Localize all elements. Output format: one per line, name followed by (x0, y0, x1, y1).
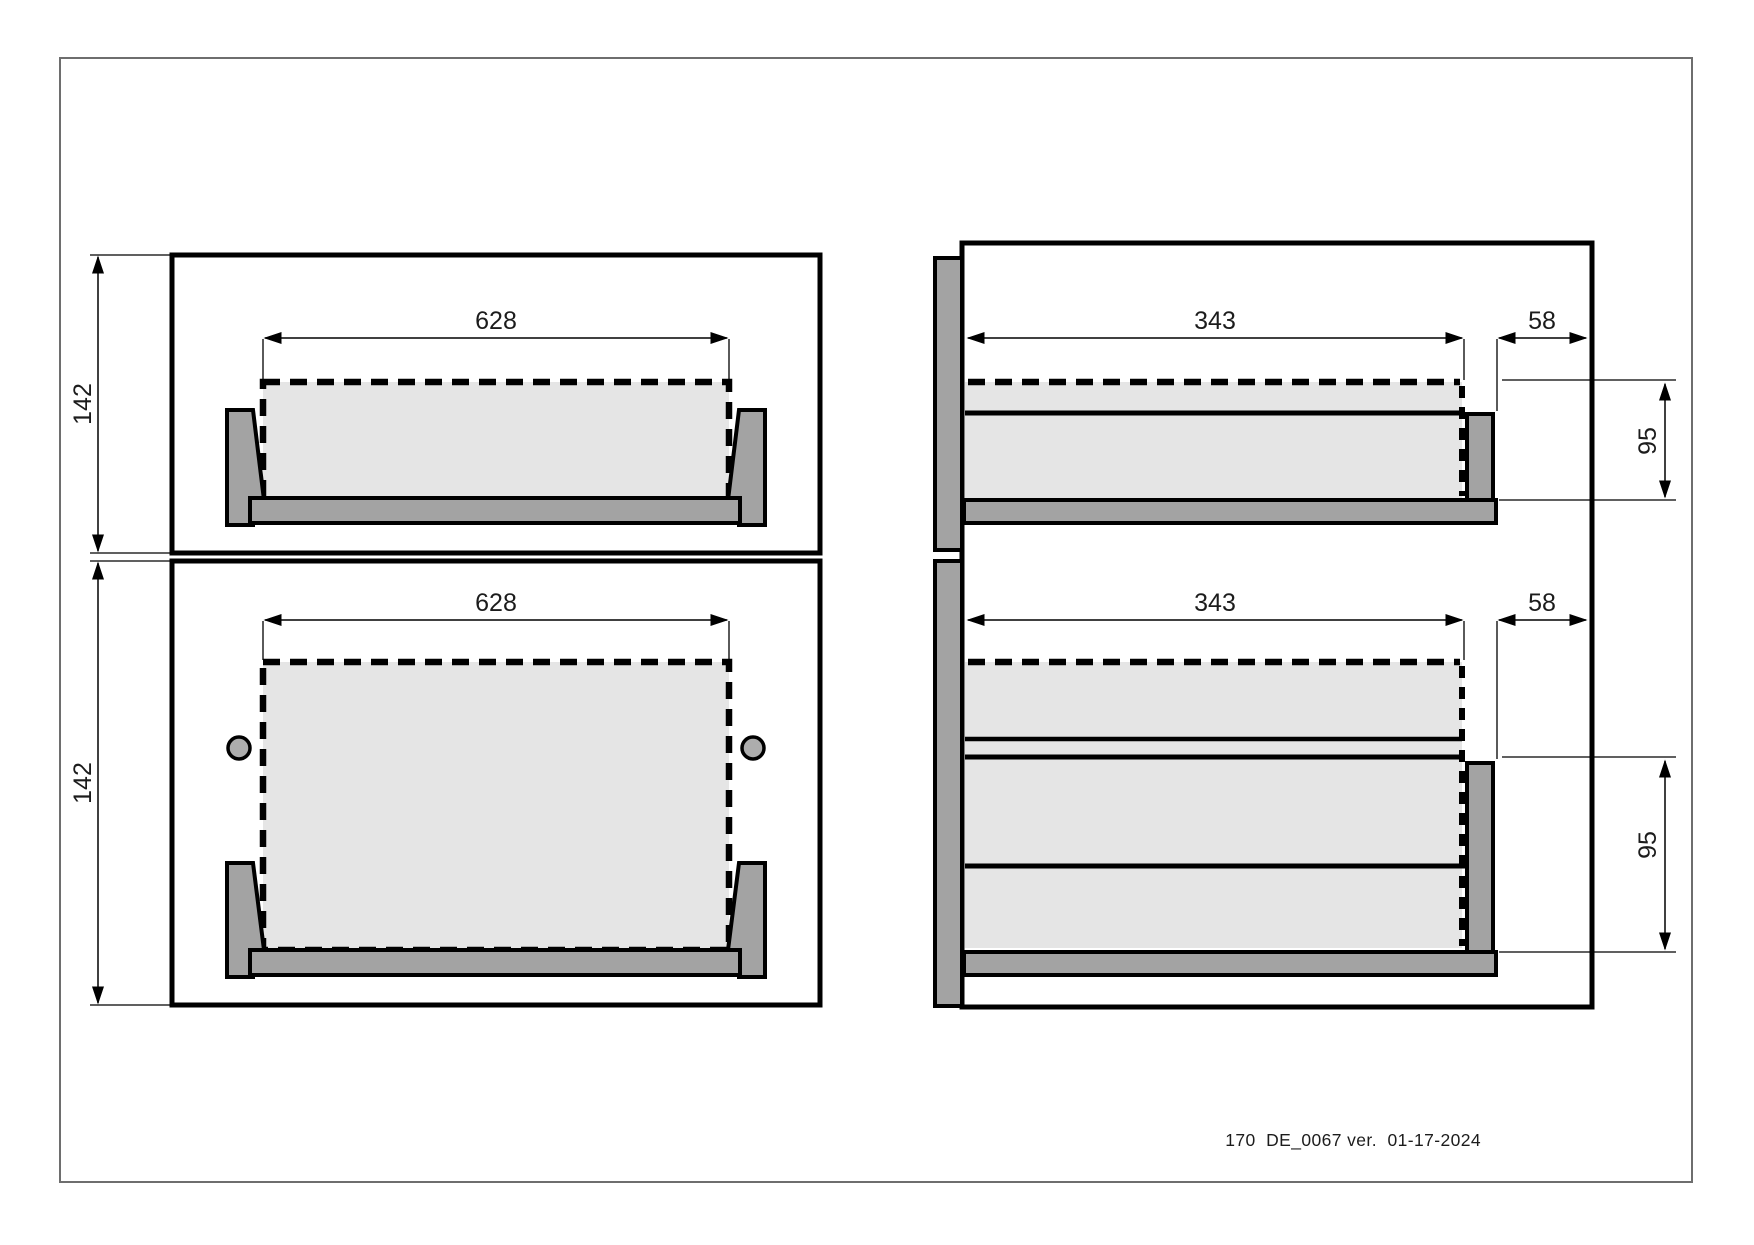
dim-label-back-height: 95 (1634, 831, 1662, 859)
lower-front-panel-end (935, 561, 962, 1006)
technical-drawing: 142 628 142 628 (0, 0, 1754, 1240)
dim-label-offset: 58 (1528, 589, 1556, 617)
title-block-text: 170 DE_0067 ver. 01-17-2024 (1225, 1130, 1481, 1151)
bottom-rail (250, 950, 740, 975)
back-panel-end (1467, 763, 1493, 974)
lower-back-panel-hidden (263, 662, 729, 950)
front-view-upper-drawer: 142 628 (69, 255, 820, 553)
mounting-hole-left (228, 737, 250, 759)
dim-label-height: 142 (69, 383, 97, 425)
drawer-bottom (964, 952, 1496, 975)
dim-label-width: 628 (475, 589, 517, 617)
dim-label-height: 142 (69, 762, 97, 804)
drawing-sheet: 142 628 142 628 (0, 0, 1754, 1240)
upper-front-panel-end (935, 258, 962, 550)
back-panel-end (1467, 414, 1493, 500)
dim-label-width: 628 (475, 307, 517, 335)
side-section-view: 343 58 95 343 (935, 243, 1676, 1007)
mounting-hole-right (742, 737, 764, 759)
bottom-rail (250, 498, 740, 523)
dim-label-depth: 343 (1194, 589, 1236, 617)
drawer-bottom (964, 500, 1496, 523)
front-view-lower-drawer: 142 628 (69, 561, 820, 1005)
upper-back-panel-hidden (263, 382, 729, 500)
dim-label-back-height: 95 (1634, 427, 1662, 455)
dim-label-depth: 343 (1194, 307, 1236, 335)
lower-side-panel (965, 662, 1462, 948)
upper-side-panel (965, 382, 1462, 498)
dim-label-offset: 58 (1528, 307, 1556, 335)
